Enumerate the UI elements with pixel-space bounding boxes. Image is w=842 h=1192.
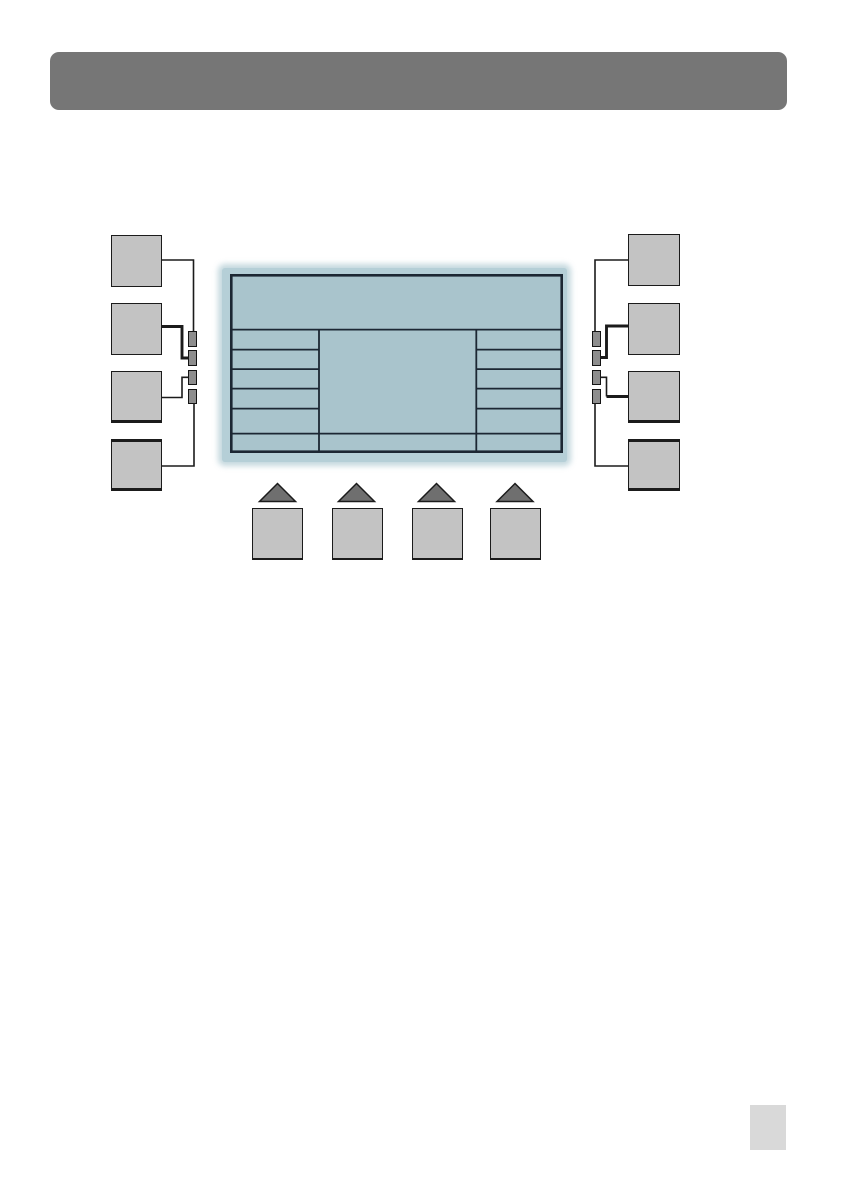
leader-left-2 (162, 327, 189, 359)
right-callout-box-3 (628, 371, 680, 423)
right-callout-box-2 (628, 303, 680, 355)
left-softkey-1 (188, 331, 198, 347)
leader-left-3 (162, 377, 189, 397)
device-panel-figure (0, 0, 842, 620)
right-callout-box-4 (628, 439, 680, 491)
left-callout-box-3 (111, 371, 162, 423)
leader-right-4 (595, 403, 629, 466)
left-softkey-2 (188, 350, 198, 366)
left-softkey-4 (188, 389, 198, 405)
left-callout-box-4 (111, 439, 162, 491)
left-callout-box-1 (111, 235, 162, 287)
figure-line-art (0, 0, 842, 1192)
right-callout-box-1 (628, 234, 680, 286)
up-arrow-icon-4 (497, 484, 533, 502)
right-softkey-1 (592, 331, 602, 347)
up-arrow-icon-3 (419, 484, 455, 502)
leader-right-2 (601, 326, 629, 358)
bottom-button-1 (252, 508, 303, 560)
left-softkey-3 (188, 370, 198, 386)
leader-left-4 (162, 403, 194, 466)
lcd-screen (230, 274, 563, 453)
left-callout-box-2 (111, 303, 162, 355)
document-page (0, 0, 842, 1192)
right-softkey-4 (592, 389, 602, 405)
bottom-button-3 (412, 508, 463, 560)
right-softkey-3 (592, 370, 602, 386)
right-softkey-2 (592, 350, 602, 366)
page-number-placeholder (750, 1105, 786, 1150)
up-arrow-icon-1 (260, 484, 296, 502)
leader-right-1 (595, 260, 629, 332)
up-arrow-icon-2 (339, 484, 375, 502)
leader-right-3 (601, 377, 607, 396)
leader-left-1 (162, 260, 194, 332)
bottom-button-2 (332, 508, 383, 560)
bottom-button-4 (490, 508, 541, 560)
